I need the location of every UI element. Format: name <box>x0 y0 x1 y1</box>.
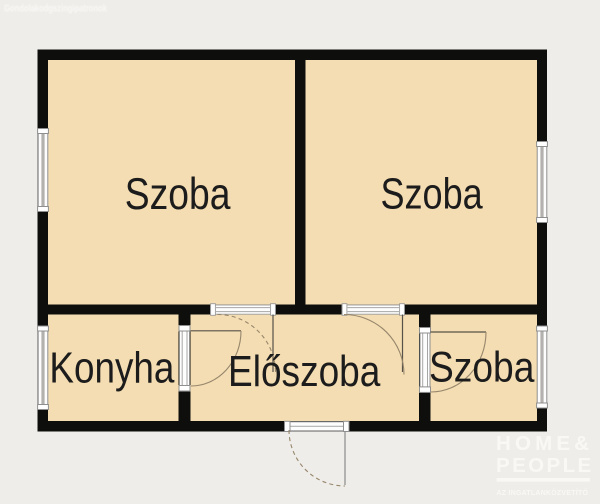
svg-text:Konyha: Konyha <box>49 342 174 392</box>
svg-text:Szoba: Szoba <box>380 169 483 218</box>
svg-text:Előszoba: Előszoba <box>228 346 381 396</box>
svg-text:AZ INGATLANKÖZVETÍTŐ: AZ INGATLANKÖZVETÍTŐ <box>497 488 589 497</box>
svg-text:PEOPLE: PEOPLE <box>496 454 594 477</box>
svg-text:Gondolakodgszingipatronok: Gondolakodgszingipatronok <box>4 2 107 13</box>
svg-text:HOME&: HOME& <box>496 432 593 455</box>
svg-text:Szoba: Szoba <box>429 344 535 391</box>
svg-text:Szoba: Szoba <box>125 169 231 219</box>
